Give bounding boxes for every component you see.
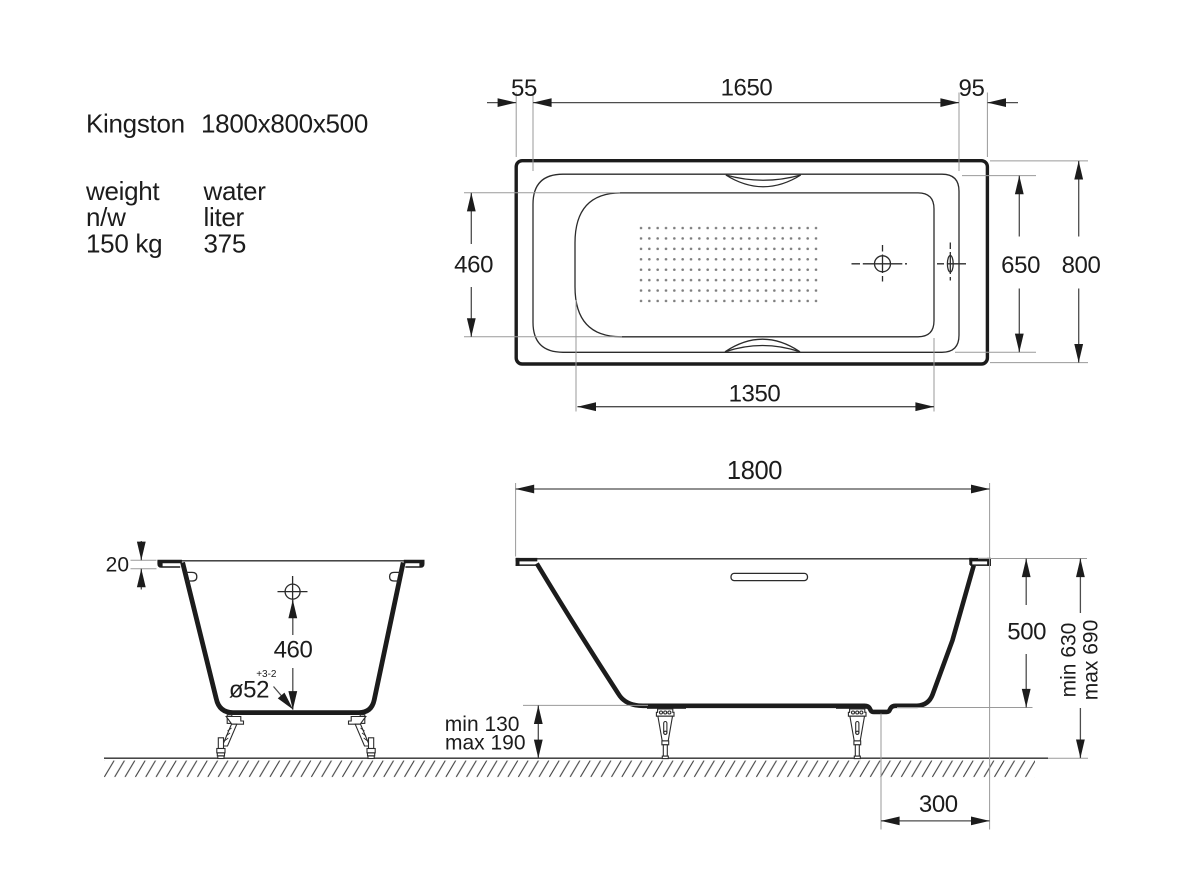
- svg-text:Kingston: Kingston: [86, 109, 185, 139]
- svg-text:max 690: max 690: [1080, 620, 1103, 701]
- svg-text:+3-2: +3-2: [256, 669, 277, 680]
- svg-text:460: 460: [454, 252, 493, 279]
- svg-text:max 190: max 190: [445, 732, 526, 755]
- svg-text:1650: 1650: [721, 75, 773, 102]
- svg-text:460: 460: [274, 636, 313, 663]
- svg-text:500: 500: [1007, 618, 1046, 645]
- svg-text:ø52: ø52: [229, 676, 269, 703]
- svg-text:300: 300: [919, 791, 958, 818]
- svg-text:liter: liter: [204, 202, 245, 232]
- svg-text:1800x800x500: 1800x800x500: [201, 109, 368, 139]
- svg-text:20: 20: [106, 554, 129, 577]
- svg-text:375: 375: [204, 229, 246, 259]
- svg-text:1350: 1350: [729, 381, 781, 408]
- svg-text:1800: 1800: [727, 457, 782, 485]
- svg-text:650: 650: [1001, 252, 1040, 279]
- svg-text:95: 95: [959, 75, 985, 102]
- svg-text:min 630: min 630: [1058, 623, 1081, 698]
- svg-text:55: 55: [511, 75, 537, 102]
- svg-text:n/w: n/w: [86, 202, 126, 232]
- svg-text:800: 800: [1062, 252, 1101, 279]
- svg-text:150 kg: 150 kg: [86, 229, 162, 259]
